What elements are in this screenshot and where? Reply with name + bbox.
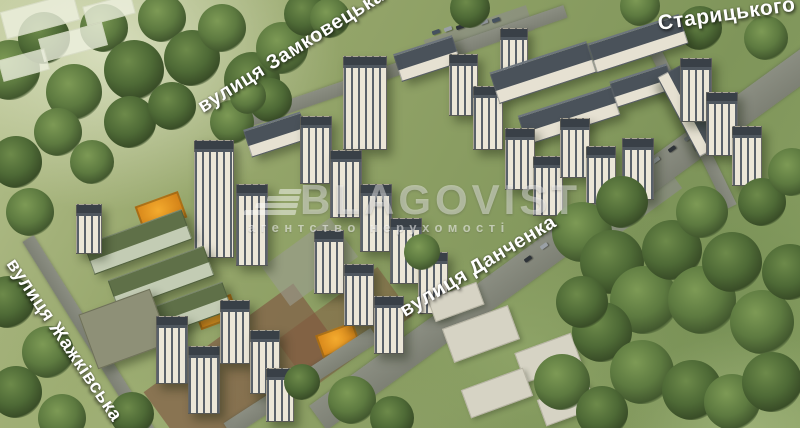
watermark-brand-text: BLAGOVIST: [300, 176, 581, 224]
watermark-subtitle-text: агентство нерухомості: [248, 220, 510, 235]
tree: [198, 4, 246, 52]
tree: [284, 364, 320, 400]
building-tower: [194, 140, 234, 258]
tree: [328, 376, 376, 424]
tree: [6, 188, 54, 236]
building-tower: [220, 300, 250, 364]
tree: [596, 176, 648, 228]
tree: [70, 140, 114, 184]
tree: [702, 232, 762, 292]
blagovist-bars-icon: [242, 187, 302, 221]
building-tower: [732, 126, 762, 186]
building-tower: [188, 346, 220, 414]
tree: [676, 186, 728, 238]
tree: [742, 352, 800, 412]
aerial-complex-render: вулиця Замковецька Старицького вулиця Да…: [0, 0, 800, 428]
building-tower: [300, 116, 332, 184]
building-tower: [314, 230, 344, 294]
building-tower: [344, 264, 374, 326]
tree: [148, 82, 196, 130]
tree: [556, 276, 608, 328]
building-tower: [76, 204, 102, 254]
building-tower: [343, 56, 387, 150]
building-tower: [156, 316, 188, 384]
tree: [404, 234, 440, 270]
